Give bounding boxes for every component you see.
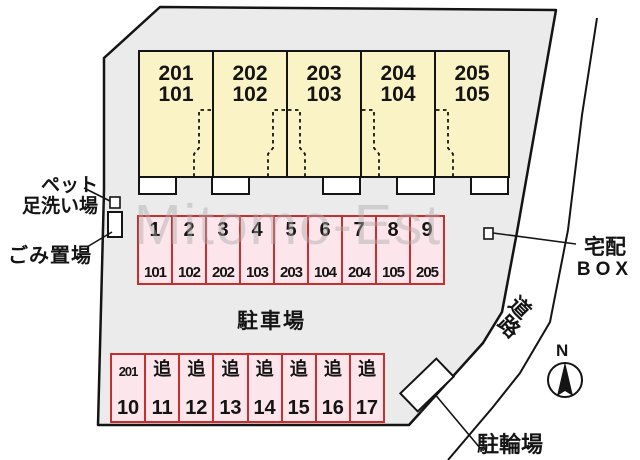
- space-unit: 203: [280, 264, 302, 283]
- parking-space: 7 204: [341, 217, 375, 283]
- space-number: 4: [251, 217, 262, 241]
- space-unit: 202: [212, 264, 234, 283]
- parking-space: 追 11: [144, 355, 178, 421]
- parking-space: 追 12: [178, 355, 212, 421]
- building-unit: 201 101: [140, 52, 214, 176]
- parking-space: 1 101: [139, 217, 171, 283]
- space-number: 9: [421, 217, 432, 241]
- space-number: 6: [319, 217, 330, 241]
- space-tag: 201: [119, 355, 138, 383]
- parking-space: 4 103: [239, 217, 273, 283]
- space-number: 10: [117, 398, 139, 421]
- space-number: 15: [288, 398, 310, 421]
- unit-label-lower: 103: [306, 84, 341, 105]
- pet-wash-label: ペット 足洗い場: [2, 175, 98, 217]
- space-number: 16: [322, 398, 344, 421]
- space-number: 8: [387, 217, 398, 241]
- delivery-box-label-line2: BOX: [572, 259, 638, 281]
- unit-label-lower: 104: [380, 84, 415, 105]
- north-label: N: [556, 341, 568, 361]
- unit-label-upper: 201: [158, 63, 193, 84]
- unit-label-upper: 203: [306, 63, 341, 84]
- space-number: 5: [285, 217, 296, 241]
- delivery-box-label: 宅配 BOX: [572, 237, 638, 281]
- parking-lot-label: 駐車場: [237, 305, 306, 335]
- apartment-building: 201 101 202 102 203 103 204 104 205 105: [138, 50, 510, 178]
- parking-space: 201 10: [112, 355, 144, 421]
- space-tag: 追: [187, 355, 205, 380]
- space-unit: 204: [348, 264, 370, 283]
- space-number: 3: [217, 217, 228, 241]
- space-unit: 103: [246, 264, 268, 283]
- building-unit: 203 103: [288, 52, 362, 176]
- space-number: 7: [353, 217, 364, 241]
- space-tag: 追: [290, 355, 308, 380]
- space-number: 12: [185, 398, 207, 421]
- space-tag: 追: [153, 355, 171, 380]
- space-number: 2: [183, 217, 194, 241]
- space-unit: 102: [178, 264, 200, 283]
- unit-label-upper: 205: [454, 63, 489, 84]
- unit-label-lower: 102: [232, 84, 267, 105]
- parking-space: 5 203: [273, 217, 307, 283]
- space-unit: 105: [382, 264, 404, 283]
- space-tag: 追: [358, 355, 376, 380]
- parking-space: 追 14: [247, 355, 281, 421]
- pet-wash-label-line2: 足洗い場: [22, 196, 98, 217]
- building-unit: 202 102: [214, 52, 288, 176]
- building-unit: 205 105: [436, 52, 508, 176]
- unit-label-upper: 202: [232, 63, 267, 84]
- parking-space: 8 105: [375, 217, 409, 283]
- site-plan: 201 101 202 102 203 103 204 104 205 105 …: [0, 0, 640, 460]
- garbage-area-label: ごみ置場: [8, 239, 92, 268]
- parking-space: 追 13: [212, 355, 246, 421]
- space-tag: 追: [221, 355, 239, 380]
- space-number: 17: [356, 398, 378, 421]
- parking-space: 2 102: [171, 217, 205, 283]
- space-number: 13: [219, 398, 241, 421]
- parking-row-upper: 1 101 2 102 3 202 4 103 5 203 6 104 7 20…: [137, 215, 445, 285]
- space-number: 1: [149, 217, 160, 241]
- space-unit: 104: [314, 264, 336, 283]
- parking-space: 3 202: [205, 217, 239, 283]
- unit-label-lower: 101: [158, 84, 193, 105]
- delivery-box-label-line1: 宅配: [584, 236, 626, 259]
- parking-row-lower: 201 10 追 11 追 12 追 13 追 14 追 15 追 16 追 1: [110, 353, 385, 423]
- space-tag: 追: [256, 355, 274, 380]
- parking-space: 追 17: [349, 355, 383, 421]
- pet-wash-label-line1: ペット: [41, 175, 98, 196]
- unit-label-upper: 204: [380, 63, 415, 84]
- parking-space: 追 16: [315, 355, 349, 421]
- parking-space: 9 205: [409, 217, 443, 283]
- space-unit: 101: [144, 264, 166, 283]
- space-tag: 追: [324, 355, 342, 380]
- building-unit: 204 104: [362, 52, 436, 176]
- bike-parking-label: 駐輪場: [477, 427, 543, 459]
- parking-space: 6 104: [307, 217, 341, 283]
- space-number: 11: [152, 398, 173, 421]
- unit-label-lower: 105: [454, 84, 489, 105]
- parking-space: 追 15: [281, 355, 315, 421]
- space-number: 14: [253, 398, 275, 421]
- space-unit: 205: [416, 264, 438, 283]
